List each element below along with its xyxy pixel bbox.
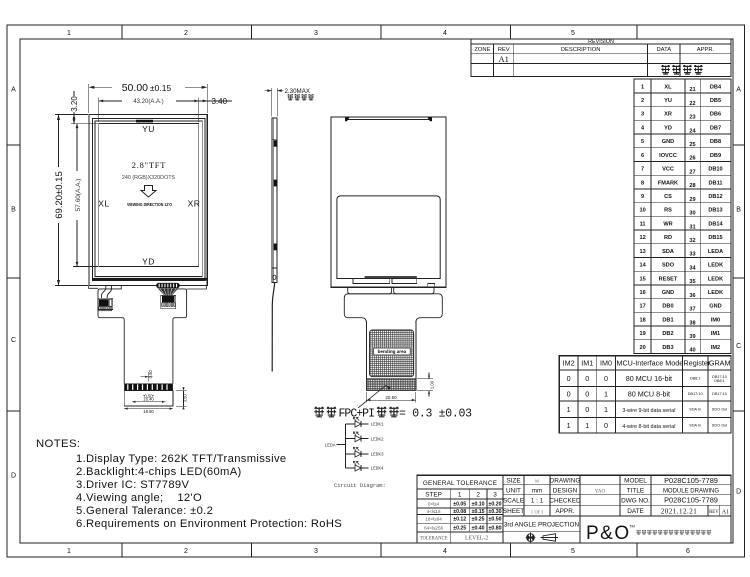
svg-text:M: M [535,479,539,484]
svg-text:2: 2 [476,492,480,499]
svg-text:0: 0 [604,421,608,430]
svg-text:1.00: 1.00 [430,380,435,389]
svg-text:3-wire 9-bit data serial: 3-wire 9-bit data serial [622,408,675,414]
svg-text:0: 0 [567,389,571,398]
svg-text:4.Viewing angle; 12'O: 4.Viewing angle; 12'O [76,492,202,504]
svg-text:31: 31 [689,224,695,230]
svg-text:3: 3 [493,492,497,499]
svg-text:RESET: RESET [659,276,678,282]
svg-text:P028C105-7789: P028C105-7789 [664,476,718,485]
svg-text:3: 3 [641,112,644,118]
svg-text:DESCRIPTION: DESCRIPTION [561,47,601,53]
svg-text:P028C105-7789: P028C105-7789 [664,496,718,505]
svg-text:LEDK: LEDK [708,276,723,282]
svg-text:80 MCU 16-bit: 80 MCU 16-bit [626,374,672,383]
svg-text:3.40: 3.40 [212,97,228,106]
svg-text:DB13: DB13 [708,208,722,214]
svg-text:DATA: DATA [656,47,671,53]
svg-text:19: 19 [639,331,645,337]
svg-text:±0.15: ±0.15 [150,83,171,93]
svg-text:GRAM: GRAM [709,359,731,368]
svg-text:5.General Talerance: ±0.2: 5.General Talerance: ±0.2 [76,505,213,517]
svg-text:±0.50: ±0.50 [489,517,502,523]
svg-text:1 : 1: 1 : 1 [531,498,544,505]
svg-text:±0.25: ±0.25 [472,517,485,523]
svg-text:±0.15: ±0.15 [472,509,485,515]
svg-text:D: D [736,489,741,496]
svg-text:A: A [11,87,16,94]
svg-text:RD: RD [664,235,672,241]
svg-text:C: C [11,337,16,344]
svg-text:39: 39 [689,334,695,340]
svg-text:40: 40 [689,348,695,354]
svg-text:16: 16 [639,290,645,296]
svg-text:DB7: DB7 [710,125,721,131]
svg-text:SCALE: SCALE [503,498,524,505]
svg-text:DB5: DB5 [710,98,721,104]
svg-text:DB2: DB2 [662,331,673,337]
svg-text:DB0: DB0 [662,304,673,310]
svg-text:15: 15 [639,276,645,282]
svg-text:3.20: 3.20 [70,96,79,112]
svg-text:±0.30: ±0.30 [489,509,502,515]
svg-text:DB14: DB14 [708,221,723,227]
svg-text:±0.08: ±0.08 [453,509,466,515]
svg-text:IM1: IM1 [581,359,593,368]
svg-text:RS: RS [664,208,672,214]
svg-text:DB15: DB15 [708,235,722,241]
svg-text:DB6: DB6 [710,112,721,118]
svg-text:SIZE: SIZE [506,478,520,485]
svg-text:27: 27 [689,169,695,175]
svg-text:26: 26 [689,156,695,162]
svg-text:±0.80: ±0.80 [489,526,502,532]
svg-text:LEVEL-2: LEVEL-2 [465,536,488,542]
svg-text:XR: XR [664,112,672,118]
svg-text:80 MCU 8-bit: 80 MCU 8-bit [628,389,670,398]
svg-text:18.50: 18.50 [143,409,154,414]
svg-text:10: 10 [639,208,645,214]
svg-text:DB17:10: DB17:10 [688,392,703,396]
svg-text:36: 36 [689,293,695,299]
svg-text:1: 1 [585,421,589,430]
svg-text:1: 1 [67,30,71,37]
svg-text:GND: GND [709,304,721,310]
svg-text:3rd ANGLE PROJECTION: 3rd ANGLE PROJECTION [504,522,580,529]
svg-text:UNIT: UNIT [506,487,521,494]
svg-text:LEDK: LEDK [708,263,723,269]
svg-text:DB3: DB3 [662,345,673,351]
svg-text:A1: A1 [499,54,509,64]
svg-text:MODULE DRAWING: MODULE DRAWING [663,488,719,494]
svg-text:TOLERANCE: TOLERANCE [420,537,448,542]
svg-text:GND: GND [662,139,674,145]
svg-text:A1: A1 [722,509,729,515]
svg-text:REVISION: REVISION [588,39,614,45]
svg-text:D: D [11,473,16,480]
svg-text:1: 1 [67,548,71,555]
svg-text:Register: Register [684,359,711,368]
svg-text:0: 0 [567,374,571,383]
svg-text:0: 0 [585,389,589,398]
svg-text:20.50: 20.50 [385,395,397,400]
svg-text:12: 12 [639,235,645,241]
svg-text:DB1: DB1 [662,317,673,323]
svg-text:mm: mm [532,487,543,494]
svg-text:4: 4 [443,548,447,555]
svg-text:50.00: 50.00 [122,82,148,94]
svg-text:28: 28 [689,183,695,189]
svg-text:35: 35 [689,279,695,285]
svg-text:±0.40: ±0.40 [472,526,485,532]
svg-text:4<l≤16: 4<l≤16 [427,509,441,514]
svg-text:25: 25 [689,142,695,148]
svg-text:LEDA: LEDA [708,249,723,255]
svg-text:0: 0 [585,405,589,414]
svg-text:FMARK: FMARK [658,180,678,186]
svg-text:3.Driver IC: ST7789V: 3.Driver IC: ST7789V [76,479,190,491]
svg-text:14: 14 [639,263,646,269]
svg-text:CHECKED: CHECKED [549,498,581,505]
svg-text:16<l≤64: 16<l≤64 [425,517,442,522]
svg-text:23: 23 [689,115,695,121]
svg-text:1.Display Type: 262K TFT/Trans: 1.Display Type: 262K TFT/Transmissive [76,453,286,465]
svg-text:LEDK3: LEDK3 [371,453,385,458]
svg-text:LEDK: LEDK [708,290,723,296]
svg-text:1: 1 [567,421,571,430]
svg-text:REV: REV [498,47,510,53]
svg-text:32: 32 [689,238,695,244]
svg-text:17: 17 [639,304,645,310]
svg-text:IOVCC: IOVCC [659,153,677,159]
svg-text:±0.12: ±0.12 [453,517,466,523]
svg-text:MCU-Interface Mode: MCU-Interface Mode [617,359,684,368]
svg-text:29: 29 [689,197,695,203]
svg-text:1: 1 [567,405,571,414]
svg-text:1: 1 [604,389,608,398]
svg-text:CS: CS [664,194,672,200]
svg-text:GND: GND [662,290,674,296]
svg-text:NOTES:: NOTES: [36,438,80,450]
svg-text:5: 5 [571,30,575,37]
svg-text:C: C [736,343,741,350]
svg-text:3: 3 [314,548,318,555]
svg-text:6: 6 [641,153,644,159]
svg-text:38: 38 [689,320,695,326]
svg-text:4: 4 [443,30,447,37]
svg-text:DRAWING: DRAWING [550,478,581,485]
svg-text:2021.12.21: 2021.12.21 [661,507,698,515]
svg-text:DB8: DB8 [710,139,721,145]
svg-text:0: 0 [585,374,589,383]
svg-text:ZONE: ZONE [474,47,490,53]
svg-text:YD: YD [664,125,672,131]
svg-text:1: 1 [604,405,608,414]
svg-text:1: 1 [458,492,462,499]
svg-text:33: 33 [689,252,695,258]
svg-text:6: 6 [686,548,690,555]
svg-text:57.60(A.A.): 57.60(A.A.) [75,179,82,212]
svg-text:69.20±0.15: 69.20±0.15 [54,171,65,218]
svg-text:SDA In: SDA In [689,424,701,428]
svg-text:43.20(A.A.): 43.20(A.A.) [133,99,163,105]
svg-text:0: 0 [604,374,608,383]
svg-text:2: 2 [184,30,188,37]
svg-text:MODEL: MODEL [624,478,647,485]
svg-text:1 Of 1: 1 Of 1 [531,510,544,515]
svg-text:DB4: DB4 [710,84,722,90]
svg-text:DESIGN: DESIGN [553,487,578,494]
svg-text:GENERAL TOLERANCE: GENERAL TOLERANCE [423,480,497,487]
svg-text:SDO Out: SDO Out [712,424,728,428]
svg-text:YU: YU [664,98,672,104]
svg-text:P&O: P&O [586,523,631,544]
svg-text:11: 11 [640,221,646,227]
svg-text:6.Requirements on Environment: 6.Requirements on Environment Protection… [76,518,342,530]
svg-text:Circuit Diagram:: Circuit Diagram: [334,483,386,489]
svg-text:DB8:1: DB8:1 [714,379,725,383]
svg-text:XR: XR [188,199,201,209]
svg-text:13: 13 [639,249,645,255]
svg-text:5: 5 [571,548,575,555]
svg-text:= 0.3 ±0.03: = 0.3 ±0.03 [399,408,472,421]
svg-text:0<l≤4: 0<l≤4 [428,502,440,507]
svg-text:24: 24 [689,128,696,134]
svg-text:LEDK1: LEDK1 [371,423,385,428]
svg-text:5: 5 [641,139,644,145]
svg-text:±0.25: ±0.25 [453,526,466,532]
svg-text:2: 2 [184,548,188,555]
svg-text:DATE: DATE [627,508,644,515]
svg-text:SDO: SDO [662,263,675,269]
svg-text:SDA In: SDA In [689,408,701,412]
svg-text:2: 2 [641,98,644,104]
svg-text:TM: TM [629,524,635,529]
svg-text:30: 30 [689,211,695,217]
svg-text:LEDK4: LEDK4 [371,467,385,472]
svg-text:TITLE: TITLE [627,487,644,494]
svg-text:2.30MAX: 2.30MAX [285,88,310,95]
svg-text:±0.05: ±0.05 [453,502,466,508]
svg-text:±0.20: ±0.20 [489,502,502,508]
svg-text:64<l≤256: 64<l≤256 [424,526,443,531]
svg-text:WR: WR [663,221,672,227]
svg-text:YAO: YAO [595,490,606,495]
svg-text:DB17:10: DB17:10 [712,392,727,396]
svg-text:37: 37 [689,307,695,313]
svg-text:VIEWING DIRECTION 12'O: VIEWING DIRECTION 12'O [127,202,172,208]
svg-text:DB11: DB11 [709,180,723,186]
svg-text:240 (RGB)X320DOTS: 240 (RGB)X320DOTS [122,175,176,181]
svg-text:YU: YU [142,124,155,134]
svg-text:VCC: VCC [662,167,674,173]
svg-text:bending area: bending area [378,349,407,354]
svg-text:IM0: IM0 [600,359,612,368]
svg-text:A: A [736,87,741,94]
svg-text:2.Backlight:4-chips LED(60mA): 2.Backlight:4-chips LED(60mA) [76,466,242,478]
svg-text:IM2: IM2 [711,345,720,351]
svg-text:DB8:1: DB8:1 [690,377,701,381]
svg-text:DB9: DB9 [710,153,721,159]
svg-text:IM2: IM2 [563,359,575,368]
svg-text:APPR.: APPR. [697,47,715,53]
svg-text:3.50: 3.50 [183,394,188,403]
svg-text:B: B [11,207,16,214]
svg-text:SDO Out: SDO Out [712,408,728,412]
svg-text:21: 21 [689,87,695,93]
svg-text:XL: XL [664,84,672,90]
svg-text:DWG NO.: DWG NO. [621,498,650,505]
svg-text:XL: XL [98,199,109,209]
svg-text:18: 18 [639,317,645,323]
svg-text:SHEET: SHEET [503,508,524,515]
svg-text:3: 3 [314,30,318,37]
svg-text:4-wire 8-bit data serial: 4-wire 8-bit data serial [622,424,675,430]
svg-text:B: B [736,207,741,214]
svg-text:34: 34 [689,265,696,271]
svg-text:0.50: 0.50 [148,369,153,378]
svg-text:16.40: 16.40 [143,397,154,402]
svg-text:LEDK2: LEDK2 [371,437,385,442]
svg-text:REV: REV [709,510,719,515]
svg-text:IM1: IM1 [711,331,720,337]
svg-text:8: 8 [641,180,644,186]
svg-text:±0.10: ±0.10 [472,502,485,508]
svg-text:7: 7 [641,167,644,173]
svg-text:DB12: DB12 [708,194,722,200]
svg-text:22: 22 [689,101,695,107]
svg-text:IM0: IM0 [711,317,720,323]
svg-text:SDA: SDA [662,249,674,255]
svg-text:DB10: DB10 [708,167,722,173]
svg-text:1: 1 [641,84,644,90]
svg-text:APPR.: APPR. [555,508,574,515]
svg-text:20: 20 [639,345,645,351]
svg-text:YD: YD [142,257,155,267]
svg-text:LEDA: LEDA [324,442,335,448]
svg-text:9: 9 [641,194,644,200]
svg-text:2.8"TFT: 2.8"TFT [132,161,166,170]
svg-text:STEP: STEP [425,492,442,499]
